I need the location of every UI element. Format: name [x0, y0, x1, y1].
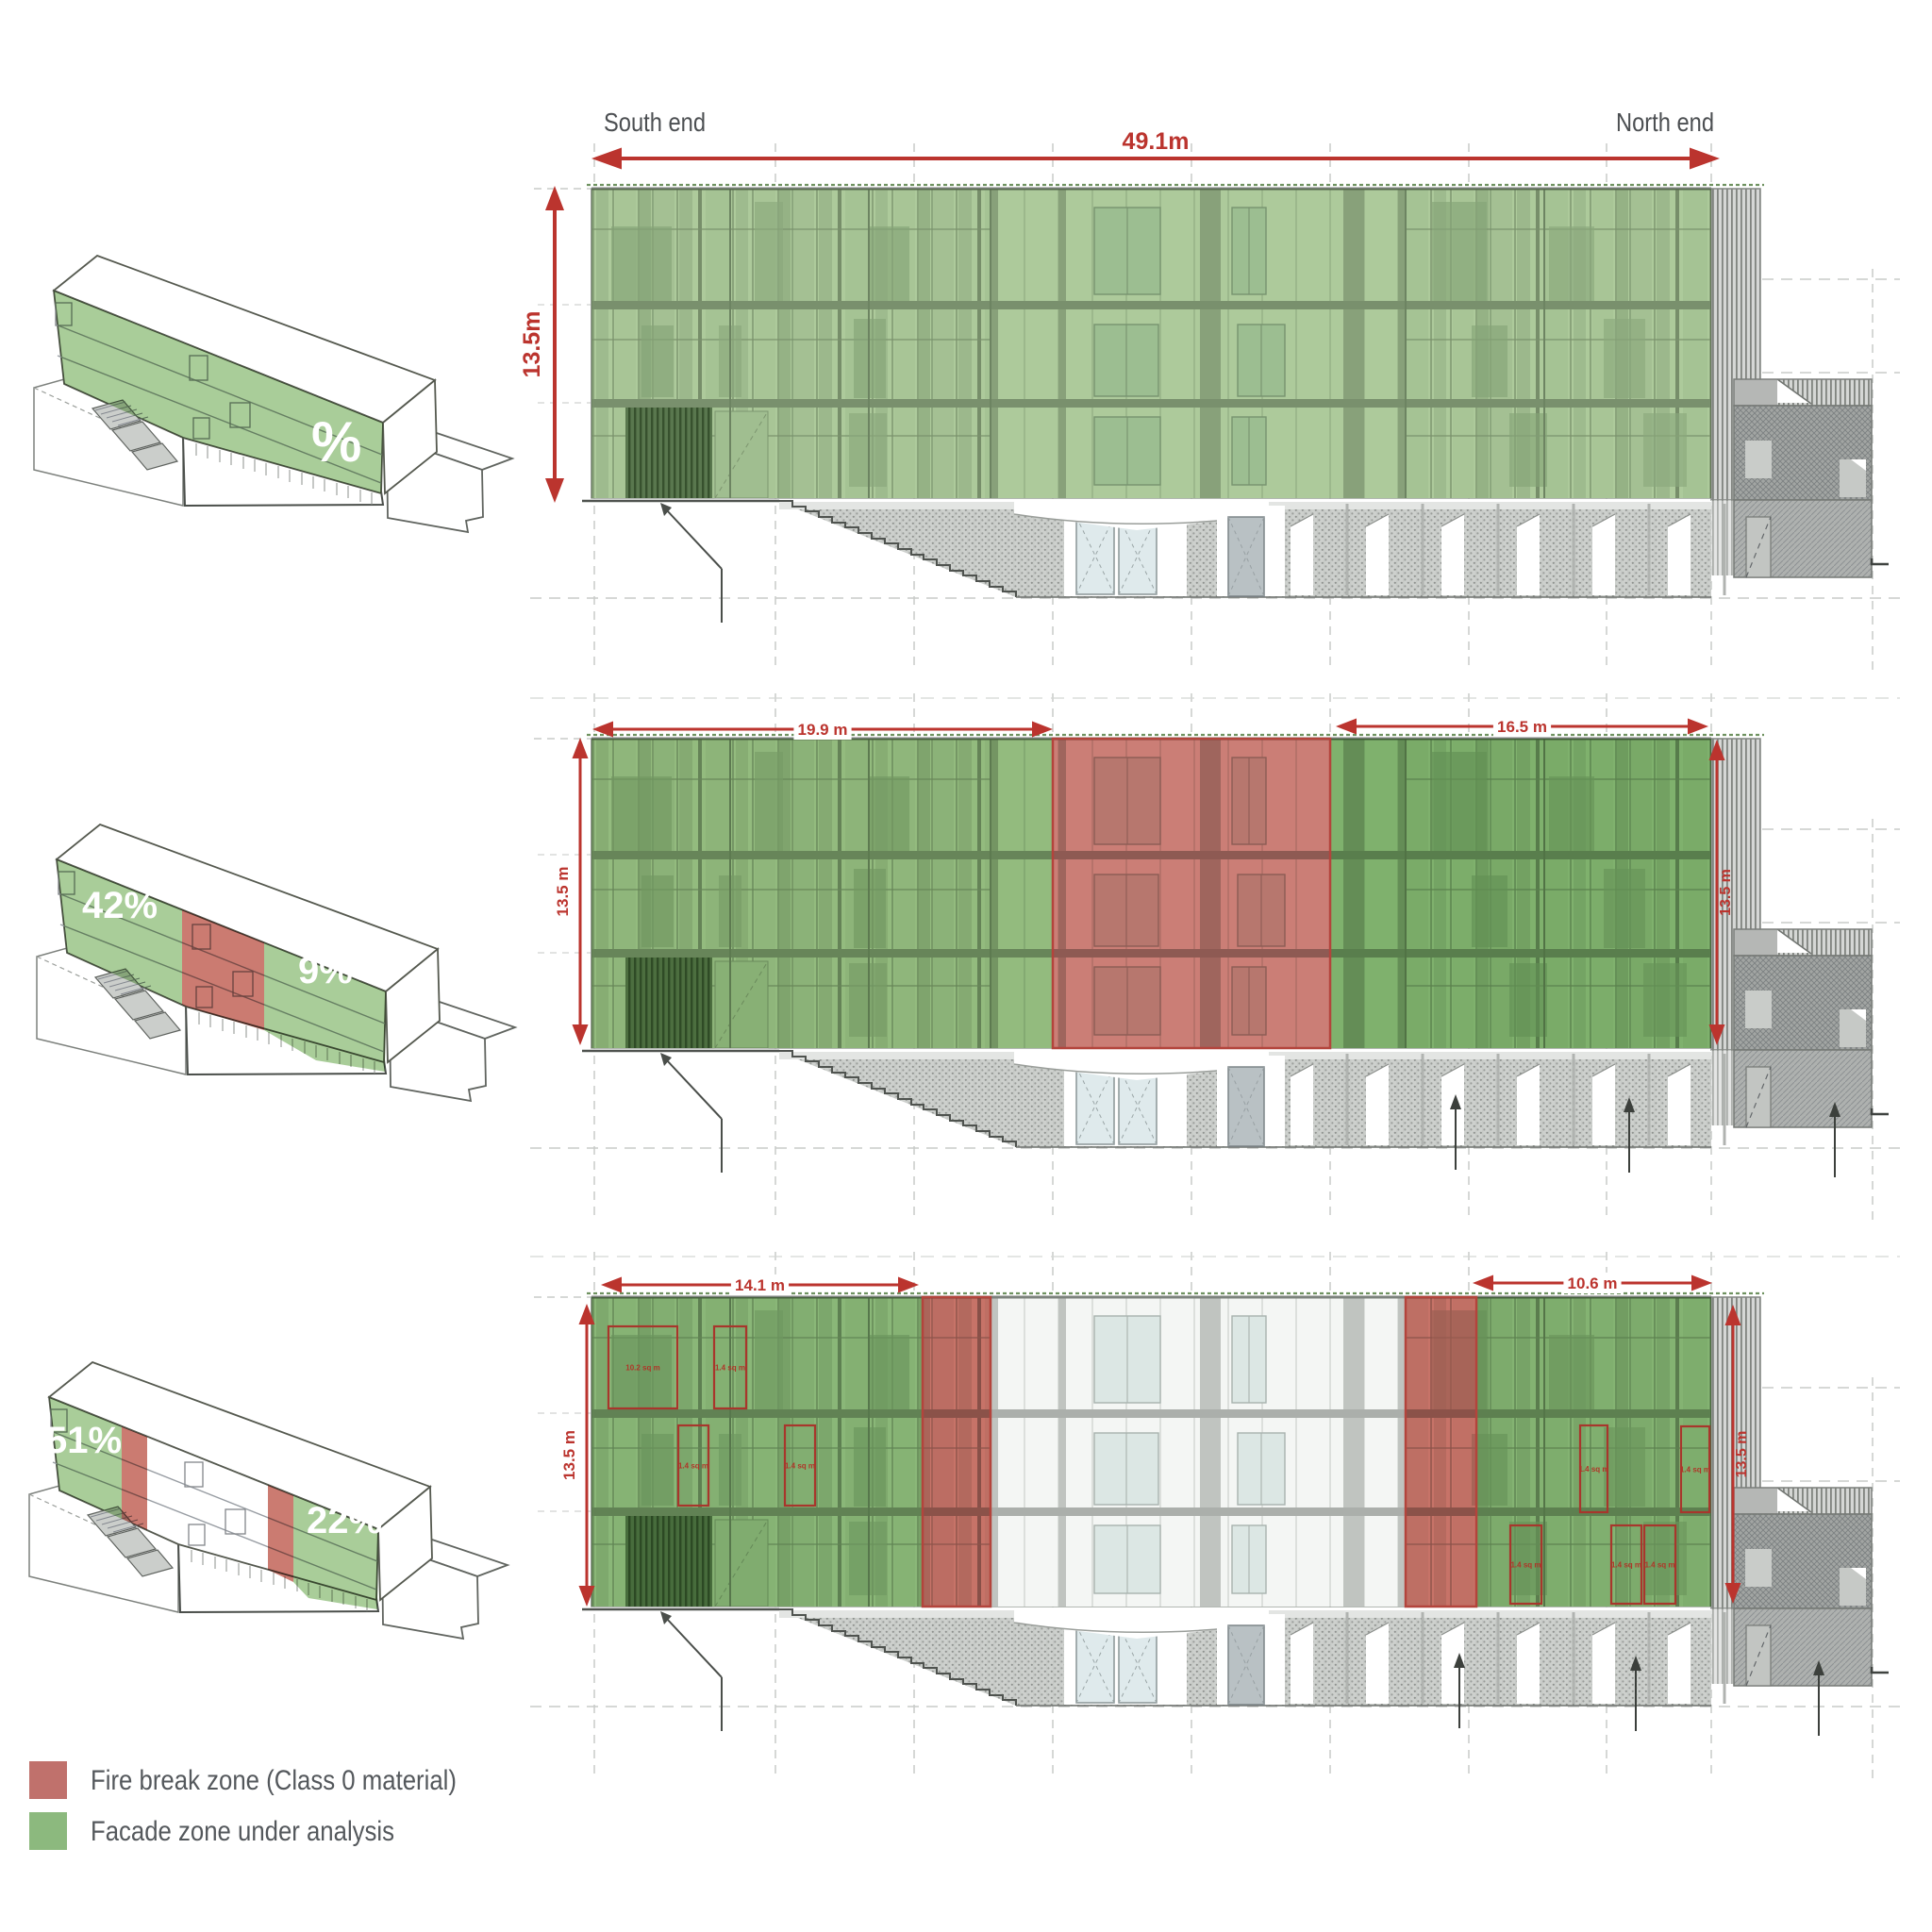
- svg-text:1.4 sq m: 1.4 sq m: [1510, 1561, 1541, 1570]
- svg-text:1.4 sq m: 1.4 sq m: [785, 1462, 815, 1471]
- svg-text:1.4 sq m: 1.4 sq m: [1644, 1561, 1674, 1570]
- svg-text:10.6 m: 10.6 m: [1568, 1274, 1618, 1292]
- svg-text:14.1 m: 14.1 m: [735, 1276, 785, 1294]
- svg-text:13.5 m: 13.5 m: [1734, 1431, 1750, 1478]
- svg-text:1.4 sq m: 1.4 sq m: [1611, 1561, 1641, 1570]
- svg-text:49.1m: 49.1m: [1123, 128, 1190, 155]
- svg-text:Fire break zone (Class 0 mater: Fire break zone (Class 0 material): [91, 1765, 457, 1796]
- svg-text:16.5 m: 16.5 m: [1497, 718, 1547, 736]
- svg-text:1.4 sq m: 1.4 sq m: [715, 1364, 745, 1373]
- svg-text:22%: 22%: [307, 1500, 382, 1541]
- svg-text:13.5m: 13.5m: [519, 311, 545, 378]
- svg-text:South end: South end: [604, 108, 706, 137]
- svg-text:13.5 m: 13.5 m: [560, 1430, 578, 1480]
- svg-text:9%: 9%: [298, 950, 353, 991]
- svg-text:1.4 sq m: 1.4 sq m: [1680, 1466, 1710, 1474]
- svg-text:13.5 m: 13.5 m: [554, 867, 572, 917]
- svg-text:%: %: [311, 410, 361, 474]
- svg-text:42%: 42%: [82, 885, 158, 926]
- svg-text:1.4 sq m: 1.4 sq m: [678, 1462, 708, 1471]
- svg-text:1.4 sq m: 1.4 sq m: [1578, 1465, 1608, 1474]
- svg-text:19.9 m: 19.9 m: [798, 721, 848, 739]
- svg-text:10.2 sq m: 10.2 sq m: [625, 1364, 659, 1373]
- svg-text:13.5 m: 13.5 m: [1718, 869, 1734, 916]
- svg-text:51%: 51%: [46, 1420, 122, 1461]
- svg-text:North end: North end: [1616, 108, 1714, 137]
- svg-text:Facade zone under analysis: Facade zone under analysis: [91, 1816, 394, 1847]
